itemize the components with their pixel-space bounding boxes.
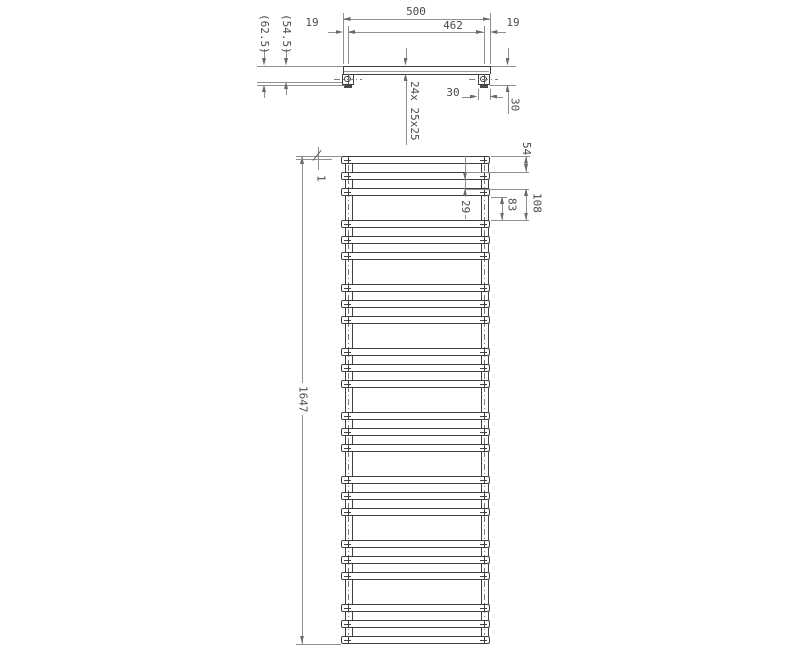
dim-label-group-gap: 83 (506, 196, 519, 213)
rail (341, 476, 490, 484)
dimension-arrow-up (262, 85, 266, 93)
dimension-arrow-right (336, 30, 344, 34)
rail-center-mark (480, 288, 487, 289)
dim-label-group-pitch: 108 (530, 192, 544, 214)
dimension-arrow-left (490, 95, 498, 99)
dimension-arrow-up (300, 156, 304, 164)
rail-center-mark (480, 160, 487, 161)
rail-center-mark (344, 320, 351, 321)
rail-center-mark (344, 624, 351, 625)
dimension-arrow-up (500, 197, 504, 205)
rail-center-mark (480, 576, 487, 577)
dim-label-rail-gap: 29 (459, 198, 472, 215)
extension-line (465, 189, 529, 190)
rail (341, 604, 490, 612)
rail (341, 364, 490, 372)
dimension-line (348, 32, 484, 33)
dimension-line (497, 97, 503, 98)
dimension-arrow-down (506, 58, 510, 66)
dimension-arrow-right (483, 17, 491, 21)
dim-label-bracket-width: 30 (446, 86, 460, 99)
dimension-arrow-down (500, 213, 504, 221)
extension-line (257, 82, 342, 83)
rail (341, 380, 490, 388)
rail-center-mark (344, 416, 351, 417)
rail (341, 252, 490, 260)
rail-center-mark (344, 512, 351, 513)
bar-outline (490, 66, 491, 74)
rail-center-mark (344, 480, 351, 481)
rail-center-mark (480, 544, 487, 545)
dimension-arrow-down (300, 636, 304, 644)
extension-line (257, 85, 345, 86)
dimension-arrow-down (524, 213, 528, 221)
rail-center-mark (344, 352, 351, 353)
dimension-arrow-down (262, 58, 266, 66)
rail-center-mark (344, 448, 351, 449)
rail-center-mark (480, 384, 487, 385)
bracket-left-plate (344, 85, 352, 89)
bracket-right-plate (480, 85, 488, 89)
extension-line (257, 66, 343, 67)
rail-center-mark (344, 576, 351, 577)
rail-center-mark (480, 624, 487, 625)
rail-center-mark (480, 448, 487, 449)
dim-label-width-centers: 462 (438, 19, 468, 32)
rail-center-mark (480, 192, 487, 193)
tube-line (345, 164, 346, 636)
bracket-centerline (469, 79, 498, 80)
dimension-arrow-left (343, 17, 351, 21)
rail-center-mark (480, 352, 487, 353)
dimension-arrow-left (490, 30, 498, 34)
rail-center-mark (344, 288, 351, 289)
dim-label-depth-overall: (62.5) (258, 14, 271, 52)
extension-line (491, 66, 516, 67)
bracket-centerline (334, 79, 362, 80)
dimension-line (462, 97, 470, 98)
tube-line (488, 164, 489, 636)
rail-center-mark (480, 496, 487, 497)
extension-line (296, 644, 341, 645)
extension-line (465, 172, 529, 173)
rail-center-mark (344, 640, 351, 641)
rail (341, 348, 490, 356)
rail-center-mark (344, 560, 351, 561)
dim-label-rail-pitch: 54 (520, 140, 533, 157)
rail (341, 508, 490, 516)
rail-center-mark (344, 176, 351, 177)
extension-line (478, 89, 479, 100)
rail-center-mark (344, 192, 351, 193)
rail-center-mark (344, 256, 351, 257)
dimension-line (264, 92, 265, 98)
dimension-arrow-down (284, 58, 288, 66)
extension-line (490, 85, 517, 86)
rail-center-mark (344, 384, 351, 385)
bar-outline (343, 66, 344, 74)
tube-line (352, 164, 353, 636)
bar-outline (343, 66, 490, 67)
dimension-line (498, 32, 507, 33)
extension-line (490, 89, 491, 100)
rail-center-mark (480, 176, 487, 177)
rail-center-mark (480, 480, 487, 481)
dim-label-width-overall: 500 (399, 5, 433, 18)
tube-line (481, 164, 482, 636)
rail (341, 444, 490, 452)
rail-center-mark (344, 496, 351, 497)
rail (341, 620, 490, 628)
rail (341, 492, 490, 500)
rail (341, 156, 490, 164)
rail-center-mark (480, 640, 487, 641)
dimension-line (318, 147, 319, 170)
rail-center-mark (344, 304, 351, 305)
rail (341, 572, 490, 580)
rail (341, 284, 490, 292)
leader-line (406, 48, 407, 58)
rail-center-mark (344, 544, 351, 545)
technical-drawing-canvas: 16471541088329500462191924x 25x25(62.5)(… (0, 0, 800, 650)
dim-label-offset-right: 19 (506, 16, 520, 29)
rail-center-mark (480, 304, 487, 305)
bar-inner-line (344, 71, 489, 72)
rail (341, 636, 490, 644)
dim-label-bracket-depth: 30 (509, 96, 522, 113)
dimension-arrow-down (404, 58, 408, 66)
rail (341, 540, 490, 548)
rail-center-mark (344, 368, 351, 369)
rail (341, 556, 490, 564)
rail-center-mark (480, 608, 487, 609)
rail-center-mark (480, 320, 487, 321)
rail (341, 220, 490, 228)
rail-center-mark (344, 432, 351, 433)
dimension-arrow-down (524, 164, 528, 172)
dimension-line (286, 89, 287, 95)
dimension-arrow-up (524, 157, 528, 164)
rail-center-mark (344, 224, 351, 225)
rail (341, 412, 490, 420)
dim-label-offset-left: 19 (305, 16, 319, 29)
bar-outline (343, 74, 490, 75)
rail-center-mark (344, 160, 351, 161)
rail-center-mark (480, 224, 487, 225)
rail (341, 428, 490, 436)
rail-center-mark (480, 240, 487, 241)
rail (341, 300, 490, 308)
rail-center-mark (480, 560, 487, 561)
dimension-line (508, 48, 509, 58)
dim-label-rail-spec: 24x 25x25 (407, 76, 421, 146)
rail-center-mark (480, 512, 487, 513)
rail (341, 236, 490, 244)
dimension-arrow-up (524, 189, 528, 197)
extension-line (484, 26, 485, 64)
extension-line (491, 220, 529, 221)
dimension-arrow-up (506, 85, 510, 93)
rail-center-mark (480, 256, 487, 257)
extension-line (490, 13, 491, 64)
dimension-arrow-right (476, 30, 484, 34)
extension-line (343, 13, 344, 64)
rail (341, 316, 490, 324)
dimension-line (328, 32, 336, 33)
rail-center-mark (480, 368, 487, 369)
dim-label-height-overall: 1647 (297, 383, 310, 415)
rail (341, 172, 490, 180)
rail-center-mark (480, 432, 487, 433)
dimension-arrow-right (470, 95, 478, 99)
rail-center-mark (344, 608, 351, 609)
dim-label-depth-centers: (54.5) (280, 14, 293, 52)
rail-center-mark (480, 416, 487, 417)
rail-center-mark (344, 240, 351, 241)
dimension-arrow-left (348, 30, 356, 34)
dim-label-top-offset: 1 (316, 170, 328, 186)
